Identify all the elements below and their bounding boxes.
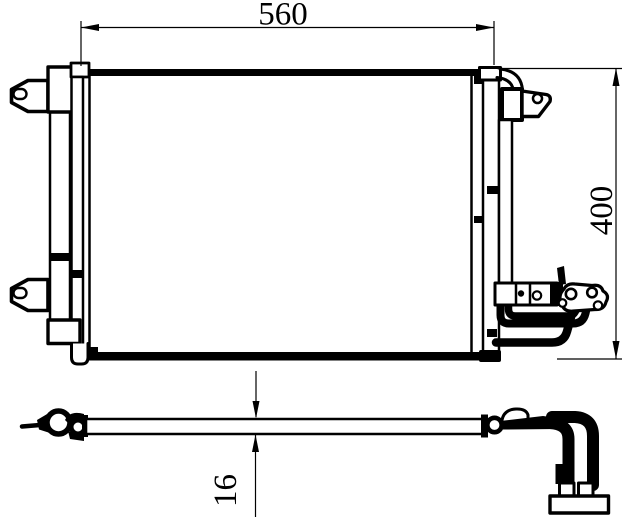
mounting-bracket-bottom-left [12,280,49,311]
right-fitting-ring [487,418,501,432]
core-top-bar [88,69,483,76]
side-plate-tab [72,270,83,278]
arrow-left [81,24,99,31]
inlet-pipe-and-bracket [497,69,550,120]
mounting-bracket-top-left [12,81,49,112]
arrow-down [613,341,620,359]
thickness-label: 16 [208,474,244,507]
side-view [22,409,609,513]
tank-tab-lower [487,329,497,337]
left-side-plate [72,77,84,352]
fitting-hole [533,291,541,299]
condenser-core [88,69,483,361]
arrow-up [252,435,259,453]
top-right-bracket-body [502,89,522,120]
left-tank [48,63,89,364]
plate-hole [559,299,567,307]
bottom-flange [550,496,609,513]
receiver-drier [499,120,512,283]
width-label: 560 [258,0,308,33]
bracket-hole [533,94,542,103]
left-clamp-ring [47,411,70,434]
plate-hole [594,301,602,309]
plate-hole [587,288,597,298]
bent-pipes [500,416,593,485]
arrow-right [476,24,494,31]
bracket-slot [14,288,27,298]
left-bottom-foot [72,344,89,365]
height-label: 400 [584,186,620,236]
left-bottom-block [48,320,80,344]
core-side-profile [86,419,483,434]
condenser-drawing: 560 400 16 [0,0,640,529]
flange-stub [579,483,594,496]
arrow-down [253,401,260,419]
connector-plate [559,284,608,311]
left-top-step [71,63,89,77]
tank-tab-mid [474,216,484,223]
plate-hole [566,289,576,299]
fitting-dot [518,290,524,296]
dimension-thickness: 16 [208,371,260,517]
flange-stub [560,483,575,496]
tank-tab-upper [487,186,499,194]
bracket-slot [14,89,27,99]
front-view [12,63,608,364]
core-bottom-bar [88,352,483,361]
arrow-up [613,68,620,86]
technical-drawing-page: 560 400 16 [0,0,640,529]
tank-joint-band [49,253,71,261]
dimension-width: 560 [81,0,494,66]
right-bottom-foot [479,350,501,362]
